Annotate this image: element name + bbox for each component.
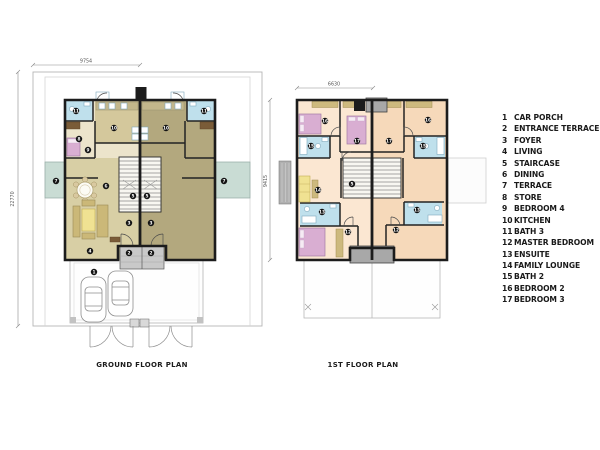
legend-item: 17BEDROOM 3: [502, 295, 599, 306]
wardrobe-icon: [312, 102, 338, 108]
legend-item: 7TERRACE: [502, 181, 599, 192]
dimension-height: 22770: [10, 70, 20, 328]
room-number-text: 2: [128, 251, 131, 257]
room-number-text: 16: [322, 119, 328, 125]
legend-item: 8STORE: [502, 193, 599, 204]
legend-label: STAIRCASE: [514, 159, 560, 168]
stove-icon: [132, 134, 139, 140]
legend-number: 16: [502, 284, 514, 293]
tub-icon: [437, 138, 444, 155]
legend-item: 2ENTRANCE TERRACE: [502, 124, 599, 135]
porch-post: [70, 317, 76, 323]
room-number-text: 5: [146, 194, 149, 200]
legend-number: 15: [502, 272, 514, 281]
sink-icon: [165, 103, 171, 109]
basin-icon: [416, 138, 422, 142]
toilet-icon: [434, 205, 439, 210]
stove-icon: [132, 127, 139, 133]
room-number-text: 13: [414, 208, 420, 214]
floor-plan-sheet: 9754 22770: [0, 0, 600, 450]
legend: 1CAR PORCH2ENTRANCE TERRACE3FOYER4LIVING…: [502, 113, 599, 307]
legend-number: 10: [502, 216, 514, 225]
room-number-text: 17: [354, 139, 360, 145]
legend-item: 16BEDROOM 2: [502, 284, 599, 295]
store-shelf: [66, 122, 80, 129]
legend-number: 9: [502, 204, 514, 213]
legend-number: 6: [502, 170, 514, 179]
legend-label: BATH 3: [514, 227, 544, 236]
legend-number: 1: [502, 113, 514, 122]
staircase: [343, 158, 371, 198]
room-number-text: 10: [163, 126, 169, 132]
room-number-text: 12: [345, 230, 351, 236]
room-number-text: 3: [150, 221, 153, 227]
staircase: [140, 157, 161, 212]
toilet-icon: [304, 206, 309, 211]
room-number-text: 16: [425, 118, 431, 124]
legend-number: 14: [502, 261, 514, 270]
legend-item: 1CAR PORCH: [502, 113, 599, 124]
room-number-text: 11: [73, 109, 79, 115]
room-number-text: 2: [150, 251, 153, 257]
svg-text:9754: 9754: [80, 59, 92, 65]
legend-item: 3FOYER: [502, 136, 599, 147]
legend-item: 12MASTER BEDROOM: [502, 238, 599, 249]
legend-item: 4LIVING: [502, 147, 599, 158]
room-number-text: 13: [319, 210, 325, 216]
basin-icon: [190, 102, 196, 106]
sink-icon: [109, 103, 115, 109]
side-terrace-right: [215, 162, 250, 198]
hob-icon: [121, 103, 127, 109]
car-icon: [81, 277, 106, 322]
sink-icon: [175, 103, 181, 109]
svg-text:22770: 22770: [10, 191, 16, 206]
meter-box: [130, 319, 139, 327]
room-number-text: 6: [105, 184, 108, 190]
side-planter: [279, 161, 291, 204]
room-number-text: 5: [132, 194, 135, 200]
legend-label: DINING: [514, 170, 544, 179]
dimension-width: 9754: [31, 59, 142, 68]
legend-label: STORE: [514, 193, 542, 202]
side-terrace-outline: [448, 158, 486, 203]
legend-label: BATH 2: [514, 272, 544, 281]
toilet-icon: [315, 143, 320, 148]
room-number-text: 14: [315, 188, 321, 194]
legend-label: BEDROOM 4: [514, 204, 565, 213]
svg-text:6630: 6630: [328, 82, 340, 88]
legend-item: 14FAMILY LOUNGE: [502, 261, 599, 272]
room-number-text: 4: [89, 249, 92, 255]
staircase: [373, 158, 401, 198]
ground-floor-title: GROUND FLOOR PLAN: [96, 361, 188, 369]
room-number-text: 9: [87, 148, 90, 154]
legend-number: 3: [502, 136, 514, 145]
room-number-text: 12: [393, 228, 399, 234]
basin-icon: [330, 204, 336, 208]
tub-icon: [302, 216, 316, 223]
svg-text:9415: 9415: [263, 175, 269, 187]
legend-label: ENTRANCE TERRACE: [514, 124, 599, 133]
legend-label: BEDROOM 2: [514, 284, 565, 293]
room-number-text: 7: [55, 179, 58, 185]
legend-item: 15BATH 2: [502, 272, 599, 283]
stove-icon: [141, 127, 148, 133]
entrance-terrace: [120, 246, 164, 269]
wardrobe-icon: [336, 229, 343, 257]
tub-icon: [300, 138, 307, 155]
legend-item: 9BEDROOM 4: [502, 204, 599, 215]
dimension-height: 9415: [263, 98, 272, 262]
legend-item: 10KITCHEN: [502, 216, 599, 227]
legend-label: FAMILY LOUNGE: [514, 261, 580, 270]
legend-label: MASTER BEDROOM: [514, 238, 594, 247]
staircase: [119, 157, 140, 212]
basin-icon: [322, 138, 328, 142]
room-number-text: 3: [128, 221, 131, 227]
room-number-text: 8: [78, 137, 81, 143]
room-number-text: 5: [351, 182, 354, 188]
legend-item: 11BATH 3: [502, 227, 599, 238]
dimension-width: 6630: [295, 82, 375, 91]
room-number-text: 7: [223, 179, 226, 185]
legend-item: 6DINING: [502, 170, 599, 181]
first-floor-plan: 6630 9415: [263, 82, 486, 370]
wardrobe-icon: [406, 102, 432, 108]
room-number-text: 15: [420, 144, 426, 150]
ground-floor-plan: 9754 22770: [10, 59, 262, 370]
sink-icon: [99, 103, 105, 109]
legend-number: 11: [502, 227, 514, 236]
legend-number: 12: [502, 238, 514, 247]
legend-number: 7: [502, 181, 514, 190]
legend-label: LIVING: [514, 147, 542, 156]
legend-item: 5STAIRCASE: [502, 159, 599, 170]
room-number-text: 15: [308, 144, 314, 150]
legend-number: 2: [502, 124, 514, 133]
legend-number: 4: [502, 147, 514, 156]
party-wall: [139, 100, 142, 246]
legend-number: 17: [502, 295, 514, 304]
legend-number: 5: [502, 159, 514, 168]
legend-number: 8: [502, 193, 514, 202]
car-icon: [108, 271, 133, 316]
room-number-text: 1: [93, 270, 96, 276]
stove-icon: [141, 134, 148, 140]
room-number-text: 10: [111, 126, 117, 132]
porch-post: [197, 317, 203, 323]
legend-label: BEDROOM 3: [514, 295, 565, 304]
legend-number: 13: [502, 250, 514, 259]
legend-item: 13ENSUITE: [502, 250, 599, 261]
legend-label: ENSUITE: [514, 250, 550, 259]
tub-icon: [428, 215, 442, 222]
store-shelf: [200, 122, 214, 129]
meter-box: [140, 319, 149, 327]
room-number-text: 17: [386, 139, 392, 145]
bed-icon: [299, 228, 325, 256]
legend-label: KITCHEN: [514, 216, 551, 225]
roof-outline: [304, 260, 440, 318]
party-wall: [371, 100, 374, 260]
legend-label: FOYER: [514, 136, 541, 145]
basin-icon: [84, 102, 90, 106]
basin-icon: [408, 203, 414, 207]
room-number-text: 11: [201, 109, 207, 115]
gate-icon: [90, 326, 192, 347]
legend-label: TERRACE: [514, 181, 552, 190]
legend-label: CAR PORCH: [514, 113, 563, 122]
bed-icon: [299, 114, 321, 134]
first-floor-title: 1ST FLOOR PLAN: [328, 361, 399, 369]
